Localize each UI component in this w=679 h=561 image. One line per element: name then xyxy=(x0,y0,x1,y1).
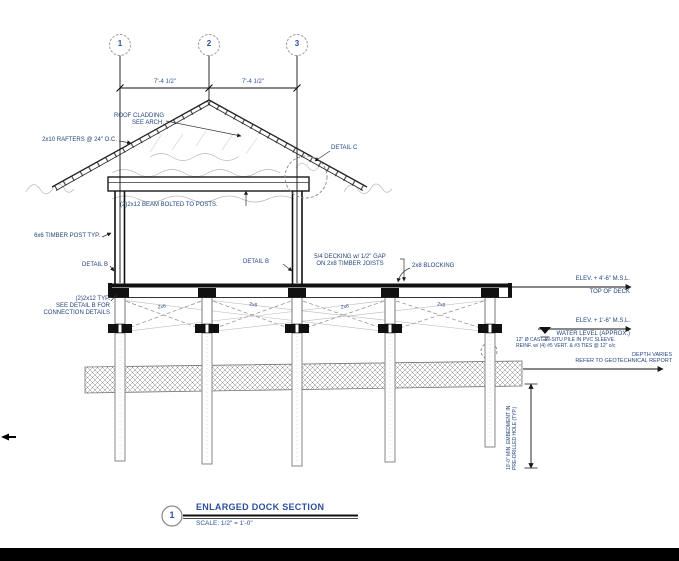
drawing-scale: SCALE: 1/2" = 1'-0" xyxy=(196,520,253,527)
pile-clamps xyxy=(108,324,502,333)
label-elev-deck-value: ELEV. + 4'-6" M.S.L. xyxy=(510,276,630,283)
label-rafters: 2x10 RAFTERS @ 24" O.C. xyxy=(22,137,117,144)
label-roof-cladding: ROOF CLADDING SEE ARCH. xyxy=(96,113,164,127)
top-beam xyxy=(108,177,309,191)
bottom-bar xyxy=(0,548,679,561)
label-decking: 5/4 DECKING w/ 1/2" GAP ON 2x8 TIMBER JO… xyxy=(302,254,398,268)
cursor-arrow-icon xyxy=(1,434,16,441)
embedment-dimension xyxy=(525,384,538,468)
grid-bubble-2: 2 xyxy=(201,39,217,48)
dock-section-drawing: 1 2 3 7'-4 1/2" 7'-4 1/2" ROOF CLADDING … xyxy=(0,0,679,561)
label-elev-deck-name: TOP OF DECK xyxy=(510,289,630,296)
grid-bubble-1: 1 xyxy=(112,39,128,48)
grid-lines xyxy=(117,55,301,283)
label-timber-post: 6x6 TIMBER POST TYP. xyxy=(20,233,100,240)
label-detail-b-left: DETAIL B xyxy=(70,262,108,269)
deck xyxy=(108,283,512,298)
label-pile-embedment: 10'-0" MIN. EMBEDMENT IN PRE-DRILLED HOL… xyxy=(506,382,519,470)
label-detail-c: DETAIL C xyxy=(331,145,381,152)
label-detail-b-mid: DETAIL B xyxy=(243,259,283,266)
label-beam-typ: (2)2x12 TYP. SEE DETAIL B FOR CONNECTION… xyxy=(28,296,110,317)
drawing-title: ENLARGED DOCK SECTION xyxy=(196,502,324,512)
label-pile-note: 12" Ø CAST-IN-SITU PILE IN PVC SLEEVE. R… xyxy=(516,338,676,350)
piles xyxy=(115,333,495,466)
grid-bubble-3: 3 xyxy=(289,39,305,48)
label-blocking: 2x8 BLOCKING xyxy=(412,263,474,270)
title-number: 1 xyxy=(164,510,180,520)
dimension-bay-left: 7'-4 1/2" xyxy=(130,79,200,86)
label-elev-water-value: ELEV. + 1'-6" M.S.L. xyxy=(510,318,630,325)
pile-centerlines xyxy=(120,336,490,464)
dimension-bay-right: 7'-4 1/2" xyxy=(218,79,288,86)
ground-hatch xyxy=(85,361,522,393)
label-beam-bolted: (2)2x12 BEAM BOLTED TO POSTS. xyxy=(120,202,246,209)
label-depth-varies: DEPTH VARIES REFER TO GEOTECHNICAL REPOR… xyxy=(540,352,672,365)
